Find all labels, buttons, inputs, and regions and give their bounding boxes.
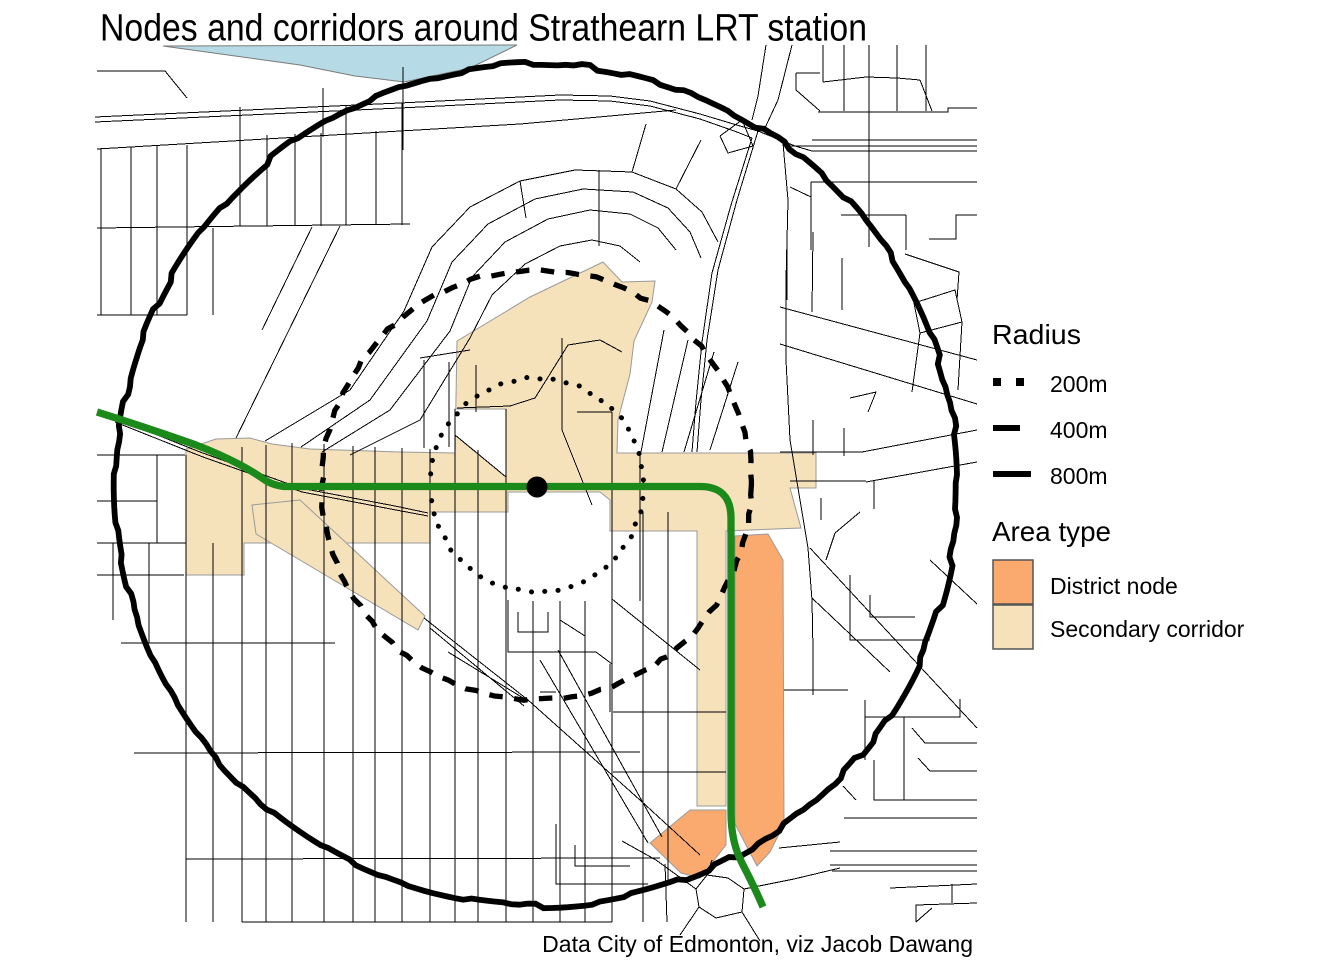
svg-text:200m: 200m [1050,371,1108,397]
svg-text:Area type: Area type [992,516,1111,547]
svg-text:District node: District node [1050,573,1178,599]
svg-text:400m: 400m [1050,417,1108,443]
svg-text:800m: 800m [1050,463,1108,489]
svg-text:Data City of Edmonton, viz Jac: Data City of Edmonton, viz Jacob Dawang [542,931,973,957]
svg-text:Radius: Radius [992,319,1081,350]
svg-text:Secondary corridor: Secondary corridor [1050,616,1245,642]
svg-text:Nodes and corridors around Str: Nodes and corridors around Strathearn LR… [100,8,867,50]
